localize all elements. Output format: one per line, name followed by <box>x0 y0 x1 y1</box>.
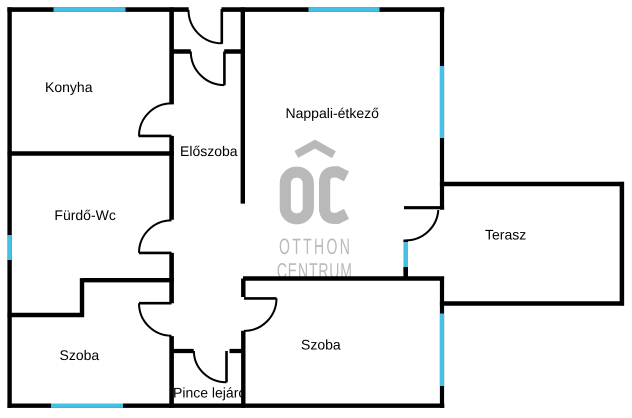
svg-text:Pince lejáró: Pince lejáró <box>173 385 246 401</box>
svg-text:Előszoba: Előszoba <box>180 143 238 159</box>
svg-text:Fürdő-Wc: Fürdő-Wc <box>54 207 115 223</box>
svg-text:Nappali-étkező: Nappali-étkező <box>286 105 380 121</box>
svg-text:Terasz: Terasz <box>485 227 526 243</box>
svg-text:Konyha: Konyha <box>45 79 93 95</box>
svg-text:OTTHON: OTTHON <box>279 233 352 258</box>
svg-text:Szoba: Szoba <box>301 337 341 353</box>
svg-text:Szoba: Szoba <box>60 347 100 363</box>
